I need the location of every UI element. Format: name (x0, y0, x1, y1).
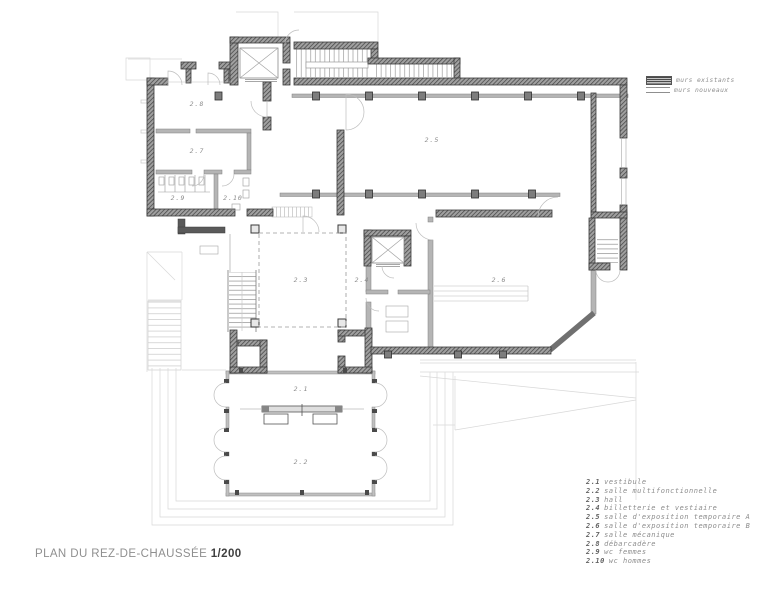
room-name: billetterie et vestiaire (604, 504, 717, 512)
new-wall-label: murs nouveaux (674, 87, 728, 94)
room-label-2-3: 2.3 (294, 276, 309, 284)
room-number: 2.6 (586, 522, 600, 530)
legend-row-new-walls: murs nouveaux (646, 85, 735, 95)
legend-item: 2.1vestibule (586, 478, 750, 487)
room-number: 2.1 (586, 478, 600, 486)
room-label-2-8: 2.8 (190, 100, 205, 108)
legend-item: 2.3hall (586, 496, 750, 505)
legend-item: 2.10wc hommes (586, 557, 750, 566)
exterior-west-stair (148, 301, 181, 370)
legend-item: 2.9wc femmes (586, 548, 750, 557)
room-name: hall (604, 496, 623, 504)
room-name: wc femmes (604, 548, 646, 556)
room-name: débarcadère (604, 540, 656, 548)
room-label-2-2: 2.2 (294, 458, 309, 466)
legend-row-existing-walls: murs existants (646, 75, 735, 85)
wc-fixtures (158, 175, 249, 210)
room-index-legend: 2.1vestibule 2.2salle multifonctionnelle… (586, 478, 750, 566)
floor-plan-sheet: 2.8 2.7 2.9 2.10 2.5 2.3 2.4 2.6 2.1 2.2… (0, 0, 780, 603)
room-number: 2.3 (586, 496, 600, 504)
existing-walls (147, 37, 627, 373)
new-walls (156, 94, 628, 348)
room-name: salle multifonctionnelle (604, 487, 717, 495)
stair-north-b (374, 64, 452, 77)
room-number: 2.5 (586, 513, 600, 521)
room-label-2-1: 2.1 (294, 385, 309, 393)
elevator-a-cab (240, 48, 278, 82)
elevator-b-cab (372, 237, 404, 267)
hall-north-wall (178, 219, 225, 234)
room-number: 2.2 (586, 487, 600, 495)
legend-item: 2.7salle mécanique (586, 531, 750, 540)
stair-east (597, 237, 618, 263)
legend-item: 2.2salle multifonctionnelle (586, 487, 750, 496)
stair-loading-dock (272, 207, 312, 217)
sheet-title-text: PLAN DU REZ-DE-CHAUSSÉE (35, 548, 207, 560)
existing-wall-label: murs existants (676, 77, 735, 84)
room-label-2-7: 2.7 (190, 147, 205, 155)
room-number: 2.9 (586, 548, 600, 556)
legend-item: 2.4billetterie et vestiaire (586, 504, 750, 513)
legend-item: 2.5salle d'exposition temporaire A (586, 513, 750, 522)
room-number: 2.7 (586, 531, 600, 539)
sheet-title: PLAN DU REZ-DE-CHAUSSÉE 1/200 (35, 548, 242, 560)
legend-item: 2.6salle d'exposition temporaire B (586, 522, 750, 531)
room-number: 2.8 (586, 540, 600, 548)
room-number: 2.4 (586, 504, 600, 512)
room-name: salle mécanique (604, 531, 675, 539)
room-label-2-6: 2.6 (492, 276, 507, 284)
wall-type-legend: murs existants murs nouveaux (646, 75, 735, 95)
columns (215, 92, 585, 358)
room-name: salle d'exposition temporaire A (604, 513, 750, 521)
room-number: 2.10 (586, 557, 605, 565)
room-label-2-10: 2.10 (223, 194, 243, 202)
sheet-scale: 1/200 (211, 548, 242, 560)
new-wall-swatch (646, 87, 670, 93)
reception-desk (240, 404, 364, 424)
room-label-2-5: 2.5 (425, 136, 440, 144)
room-label-2-4: 2.4 (355, 276, 370, 284)
stair-north-a (296, 49, 370, 77)
room-name: wc hommes (609, 557, 651, 565)
room-name: vestibule (604, 478, 646, 486)
diagonal-wall-2-6 (550, 313, 594, 350)
room-name: salle d'exposition temporaire B (604, 522, 750, 530)
room-label-2-9: 2.9 (171, 194, 186, 202)
legend-item: 2.8débarcadère (586, 540, 750, 549)
existing-wall-swatch (646, 76, 672, 85)
